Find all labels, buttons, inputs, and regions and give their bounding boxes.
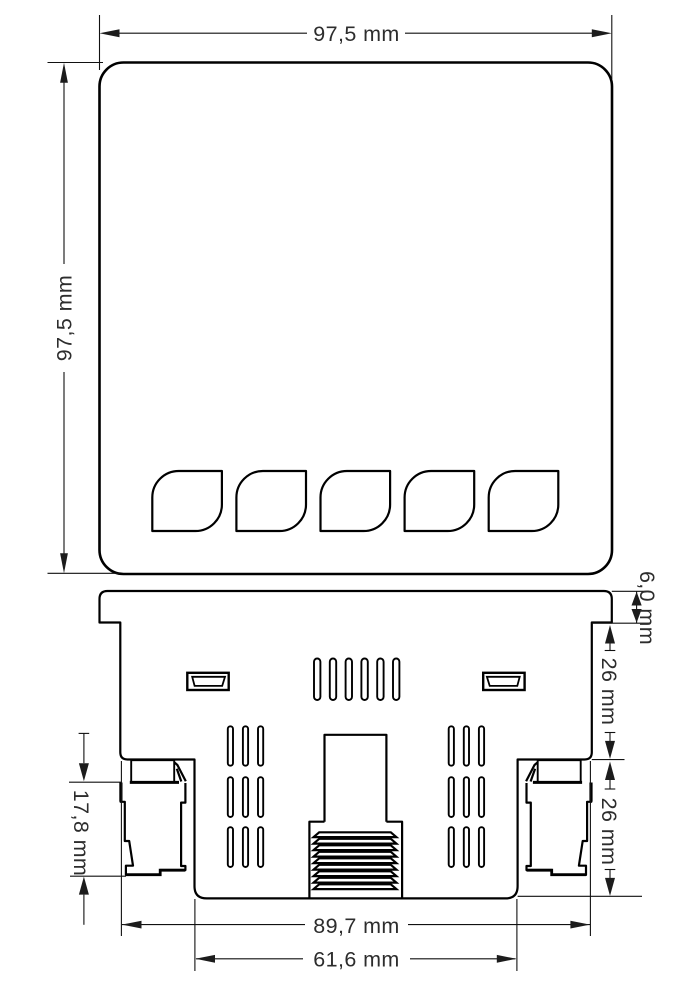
svg-text:89,7 mm: 89,7 mm [313, 914, 399, 938]
svg-text:26 mm: 26 mm [597, 798, 621, 866]
svg-text:97,5 mm: 97,5 mm [313, 22, 399, 46]
svg-text:61,6 mm: 61,6 mm [313, 948, 399, 972]
svg-text:6,0 mm: 6,0 mm [635, 571, 659, 645]
svg-text:97,5 mm: 97,5 mm [53, 275, 77, 361]
svg-text:17,8 mm: 17,8 mm [69, 790, 93, 876]
svg-text:26 mm: 26 mm [597, 658, 621, 726]
